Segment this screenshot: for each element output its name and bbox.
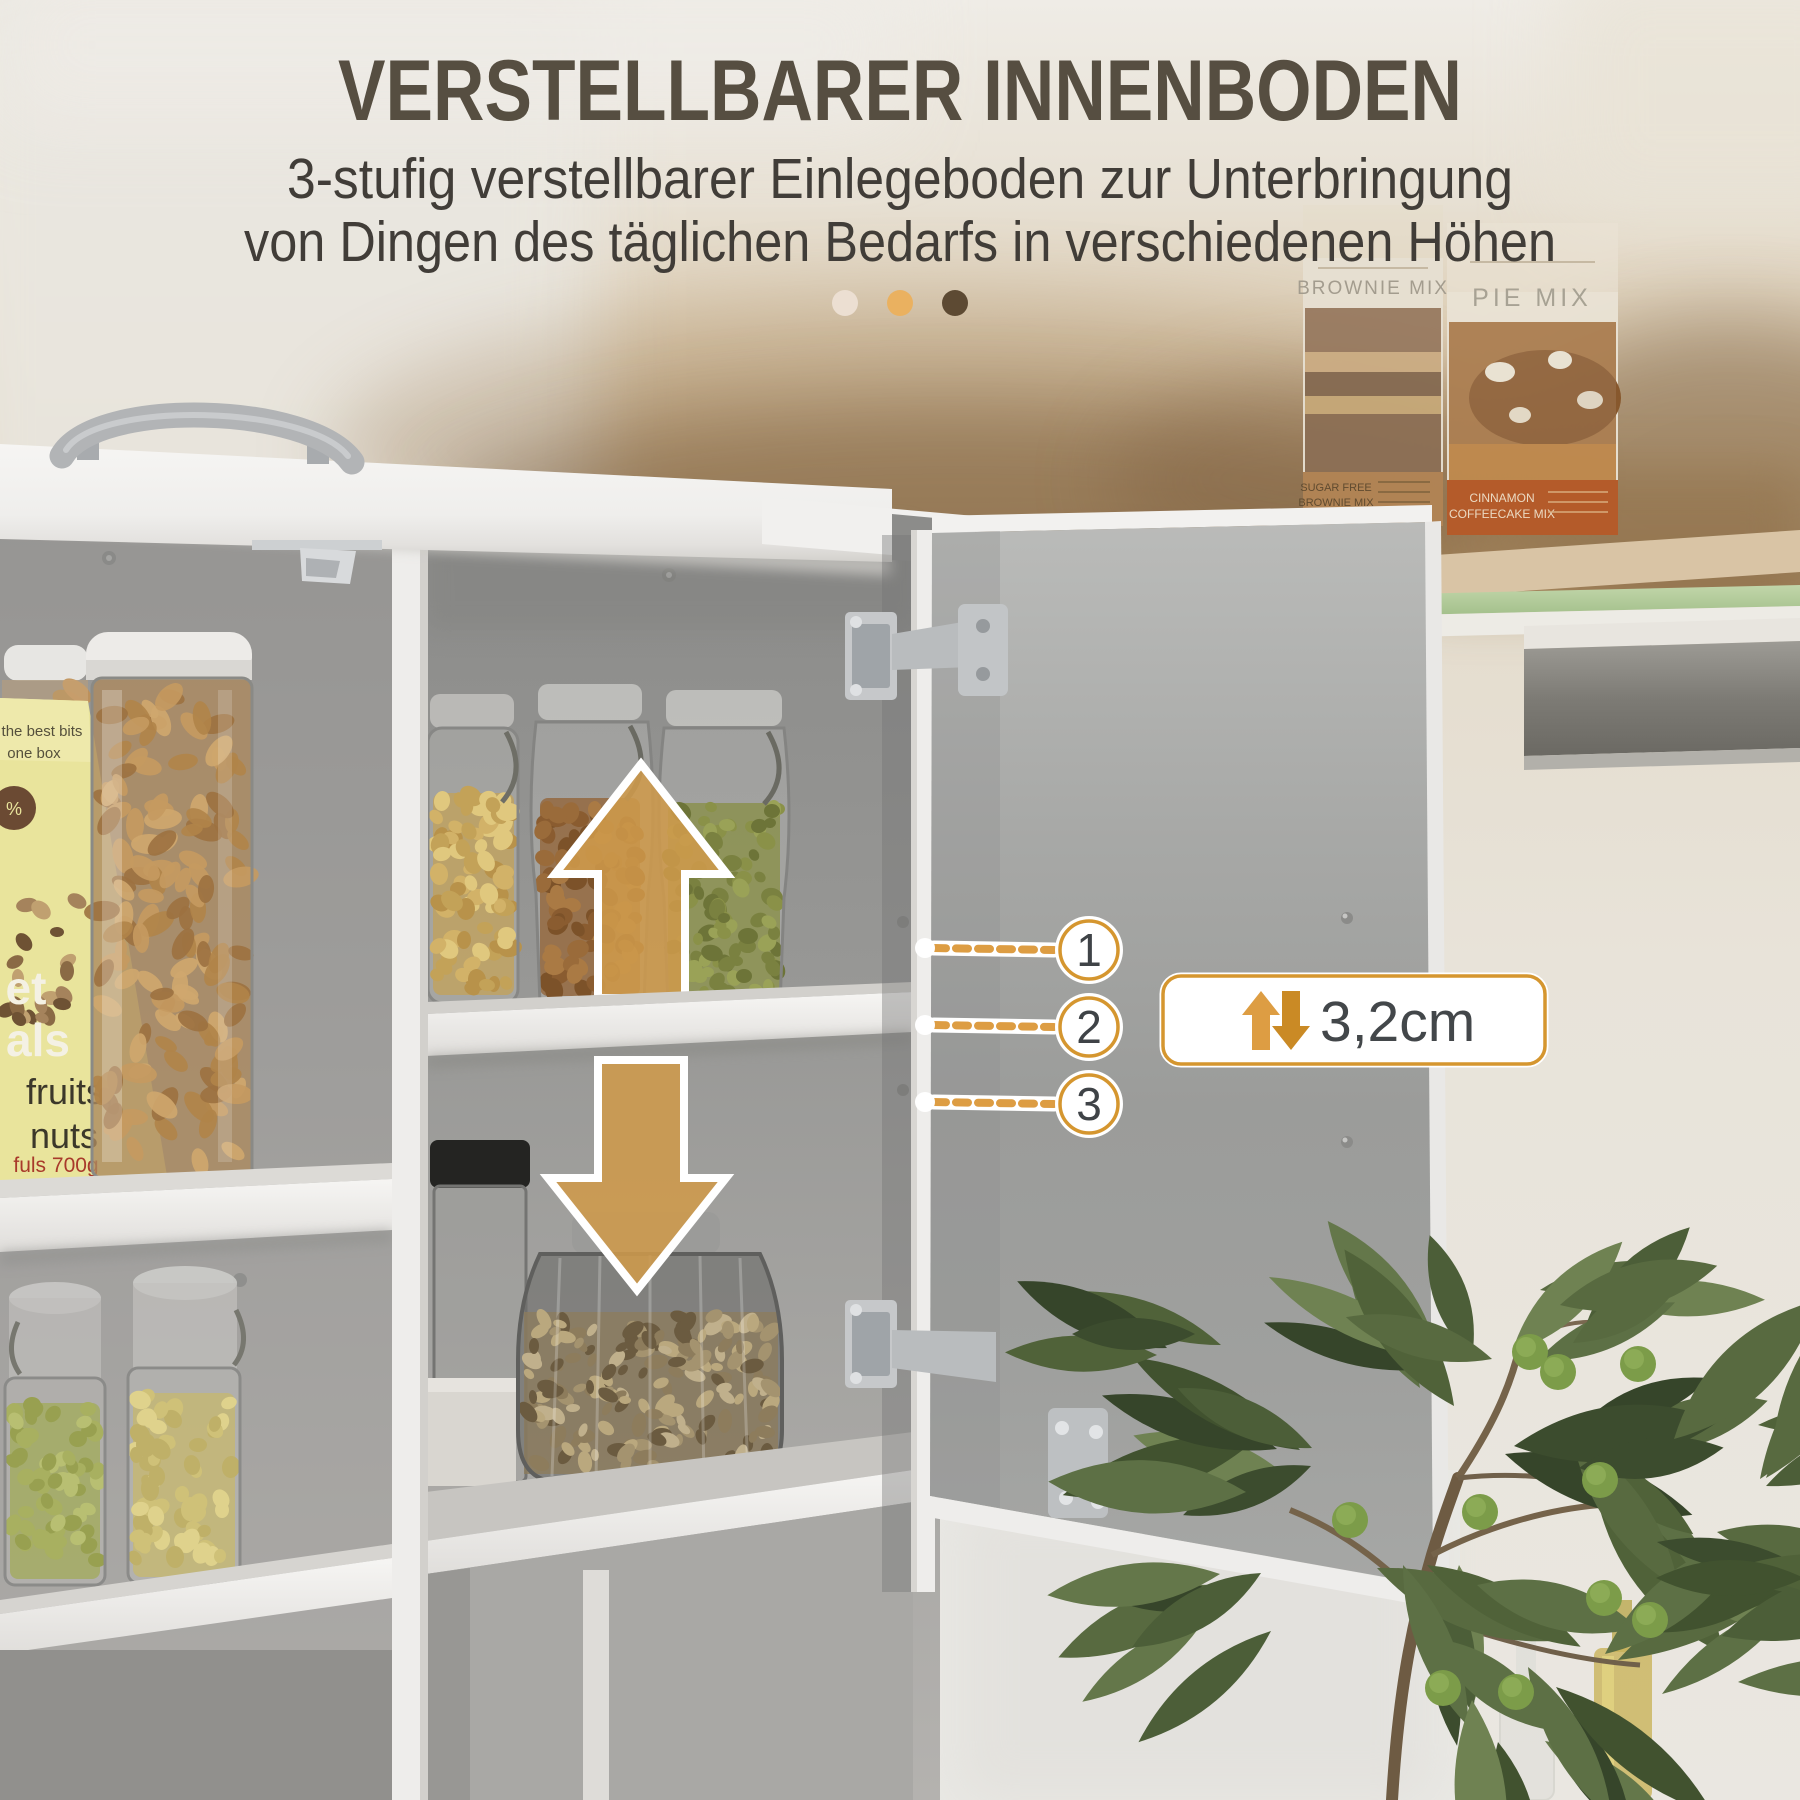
svg-text:CINNAMON: CINNAMON: [1469, 491, 1534, 505]
svg-text:als: als: [6, 1014, 70, 1066]
svg-text:et: et: [6, 962, 47, 1014]
svg-text:von Dingen des täglichen Bedar: von Dingen des täglichen Bedarfs in vers…: [244, 210, 1556, 274]
svg-text:one box: one box: [7, 745, 61, 762]
svg-text:3: 3: [1076, 1078, 1102, 1130]
svg-text:3,2cm: 3,2cm: [1320, 990, 1475, 1054]
svg-text:VERSTELLBARER INNENBODEN: VERSTELLBARER INNENBODEN: [338, 43, 1462, 139]
svg-text:fuls 700g: fuls 700g: [13, 1154, 98, 1177]
svg-text:COFFEECAKE MIX: COFFEECAKE MIX: [1449, 507, 1555, 521]
svg-text:%: %: [6, 799, 22, 819]
svg-text:1: 1: [1076, 924, 1102, 976]
svg-text:PIE MIX: PIE MIX: [1472, 284, 1592, 312]
svg-text:2: 2: [1076, 1001, 1102, 1053]
svg-text:nuts: nuts: [30, 1115, 98, 1156]
svg-text:the best bits: the best bits: [2, 723, 83, 740]
svg-text:SUGAR FREE: SUGAR FREE: [1300, 482, 1372, 494]
svg-text:BROWNIE MIX: BROWNIE MIX: [1297, 278, 1449, 299]
svg-text:3-stufig verstellbarer Einlege: 3-stufig verstellbarer Einlegeboden zur …: [287, 147, 1513, 211]
